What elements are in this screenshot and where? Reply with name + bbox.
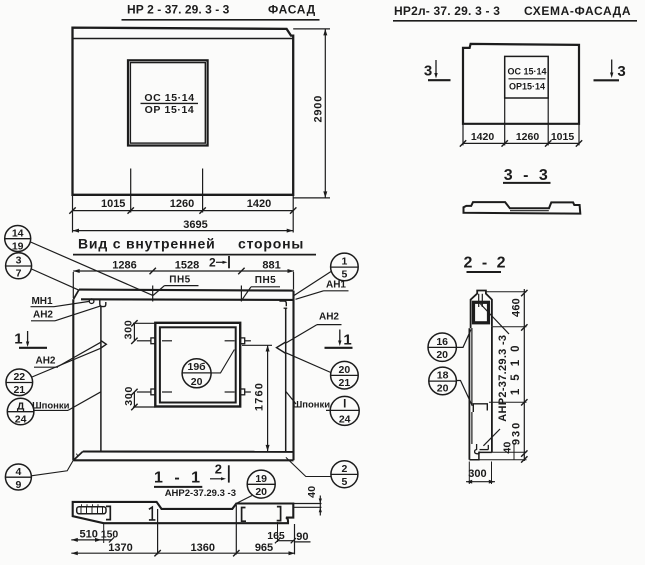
svg-text:14: 14 [12,227,24,239]
svg-text:1: 1 [343,332,351,349]
svg-text:1528: 1528 [175,259,199,271]
svg-text:ФАСАД: ФАСАД [268,3,316,17]
svg-text:2: 2 [215,462,222,477]
svg-text:АНР2-37.29.3 -3: АНР2-37.29.3 -3 [165,488,236,499]
svg-text:ОС 15·14: ОС 15·14 [144,92,194,104]
svg-text:АН2: АН2 [33,309,53,320]
svg-text:40: 40 [502,441,514,453]
svg-text:2: 2 [341,463,347,475]
svg-text:1260: 1260 [170,198,194,210]
svg-text:19б: 19б [188,361,207,373]
svg-text:1260: 1260 [516,131,540,143]
svg-text:3695: 3695 [183,219,207,231]
svg-text:881: 881 [262,259,280,271]
svg-text:ПН5: ПН5 [255,275,276,286]
svg-text:1370: 1370 [108,542,132,554]
svg-text:9: 9 [15,479,21,491]
svg-text:40: 40 [306,486,318,498]
svg-text:4: 4 [15,466,21,478]
svg-text:16: 16 [436,336,448,348]
svg-text:510: 510 [80,528,98,540]
svg-text:24: 24 [15,413,27,425]
svg-text:1015: 1015 [551,131,575,143]
svg-text:стороны: стороны [238,236,304,252]
svg-text:Вид с внутренней: Вид с внутренней [78,236,216,252]
svg-text:24: 24 [339,413,351,425]
svg-text:ОР 15·14: ОР 15·14 [145,104,195,116]
svg-text:Д: Д [17,400,25,412]
svg-text:1760: 1760 [254,382,266,411]
svg-text:3: 3 [16,255,22,267]
svg-text:90: 90 [296,531,308,543]
svg-text:1510: 1510 [510,338,522,396]
svg-text:165: 165 [267,530,285,542]
svg-text:ОС 15·14: ОС 15·14 [507,67,546,77]
svg-text:I: I [343,399,346,411]
svg-text:Шпонки: Шпонки [293,400,331,411]
svg-text:300: 300 [123,319,135,339]
svg-text:19: 19 [255,473,267,485]
svg-text:1360: 1360 [191,542,215,554]
svg-text:2900: 2900 [313,95,325,123]
svg-text:3: 3 [617,63,625,80]
svg-text:18: 18 [437,370,449,382]
svg-text:1015: 1015 [101,198,125,210]
svg-text:1420: 1420 [247,198,271,210]
svg-text:460: 460 [511,298,523,317]
svg-text:20: 20 [437,383,449,395]
svg-text:НР 2 - 37. 29. 3 - 3: НР 2 - 37. 29. 3 - 3 [127,3,230,17]
svg-text:965: 965 [255,542,273,554]
svg-text:1420: 1420 [471,131,495,143]
svg-text:МН1: МН1 [31,296,53,307]
svg-text:21: 21 [339,377,351,389]
svg-text:АН1: АН1 [326,280,346,291]
svg-text:21: 21 [13,384,25,396]
svg-text:ОР15·14: ОР15·14 [509,82,545,92]
svg-text:22: 22 [13,371,25,383]
svg-text:20: 20 [191,376,203,388]
svg-text:20: 20 [436,349,448,361]
svg-text:300: 300 [123,386,135,406]
svg-text:1286: 1286 [112,259,136,271]
svg-text:7: 7 [16,268,22,280]
svg-text:20: 20 [339,364,351,376]
svg-text:НР2л- 37. 29. 3 - 3: НР2л- 37. 29. 3 - 3 [394,4,500,18]
svg-text:300: 300 [468,468,486,480]
svg-text:АН2: АН2 [35,356,55,367]
svg-text:СХЕМА-ФАСАДА: СХЕМА-ФАСАДА [524,4,631,18]
svg-text:3: 3 [424,63,432,80]
svg-text:1 - 1: 1 - 1 [154,470,204,487]
svg-text:1: 1 [341,256,347,268]
svg-text:АН2: АН2 [319,312,339,323]
svg-text:1: 1 [14,331,22,348]
svg-text:ПН5: ПН5 [169,275,190,286]
svg-text:19: 19 [12,240,24,252]
svg-text:3 - 3: 3 - 3 [504,167,551,184]
svg-text:2 - 2: 2 - 2 [464,255,509,272]
svg-text:2: 2 [209,256,216,270]
svg-text:20: 20 [255,486,267,498]
svg-text:5: 5 [341,476,347,488]
svg-text:150: 150 [101,529,119,541]
svg-text:АНР2-37.29.3 -3: АНР2-37.29.3 -3 [497,335,509,422]
